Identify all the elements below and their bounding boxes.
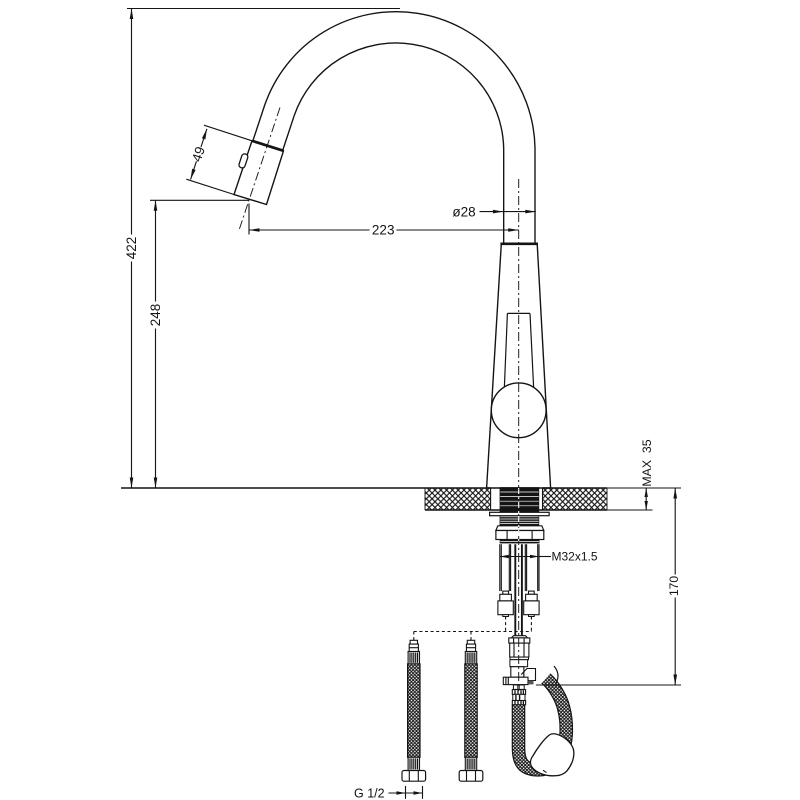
svg-text:223: 223 bbox=[372, 222, 395, 237]
svg-text:248: 248 bbox=[148, 304, 163, 327]
svg-text:MAX 35: MAX 35 bbox=[640, 439, 654, 486]
svg-text:422: 422 bbox=[124, 237, 139, 260]
svg-text:M32x1.5: M32x1.5 bbox=[552, 550, 598, 564]
svg-text:ø28: ø28 bbox=[452, 204, 475, 219]
svg-text:170: 170 bbox=[667, 576, 681, 596]
svg-text:G 1/2: G 1/2 bbox=[354, 786, 385, 800]
